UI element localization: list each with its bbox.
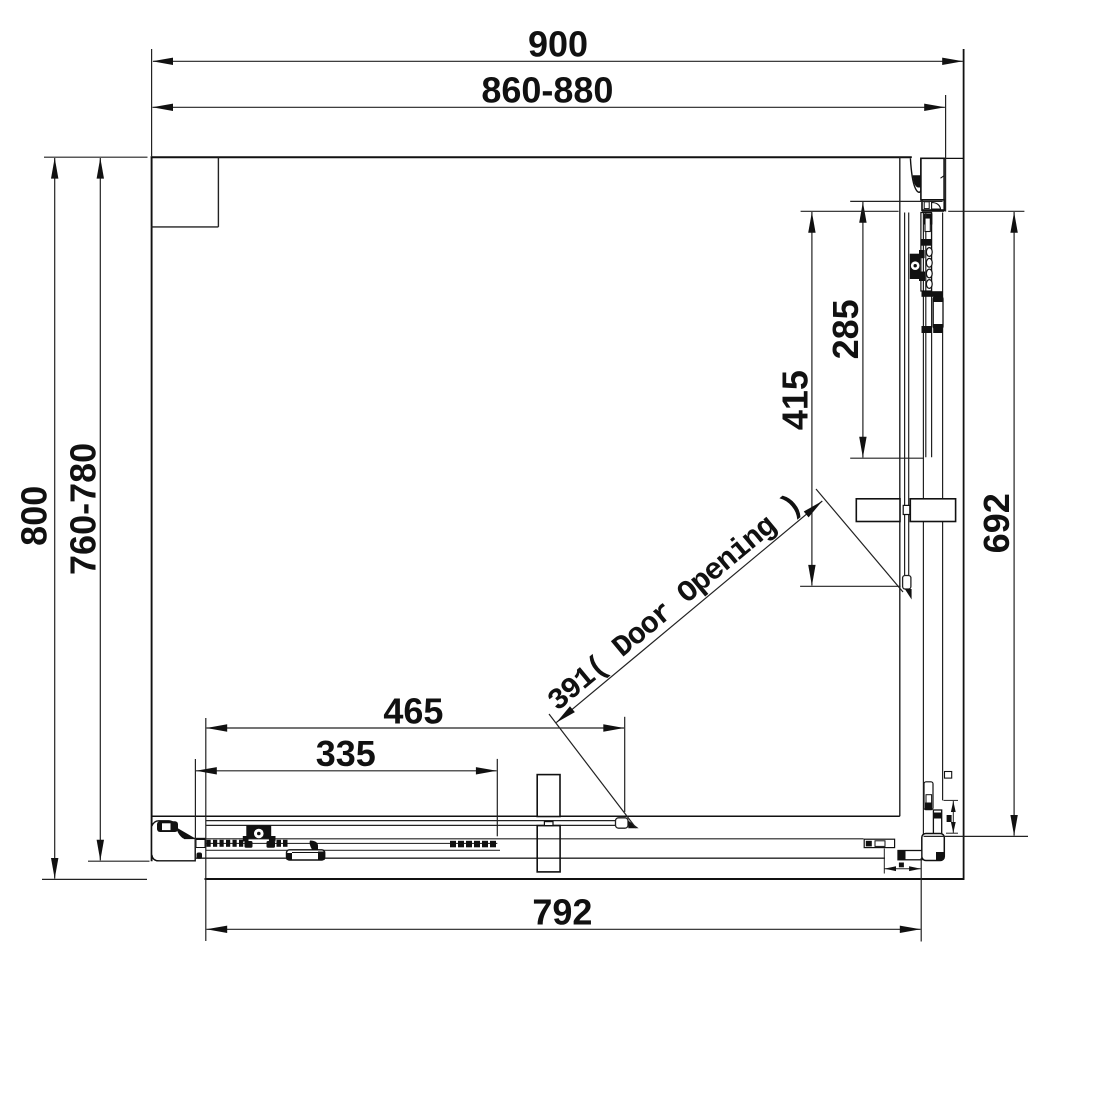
- svg-text:792: 792: [532, 892, 592, 933]
- svg-text:335: 335: [316, 733, 376, 774]
- svg-text:692: 692: [976, 493, 1017, 553]
- svg-text:415: 415: [775, 370, 816, 430]
- svg-text:860-880: 860-880: [481, 70, 613, 111]
- svg-text:285: 285: [825, 299, 866, 359]
- svg-text:900: 900: [528, 24, 588, 65]
- svg-text:465: 465: [383, 690, 443, 731]
- svg-text:760-780: 760-780: [63, 443, 104, 575]
- svg-text:800: 800: [14, 486, 55, 546]
